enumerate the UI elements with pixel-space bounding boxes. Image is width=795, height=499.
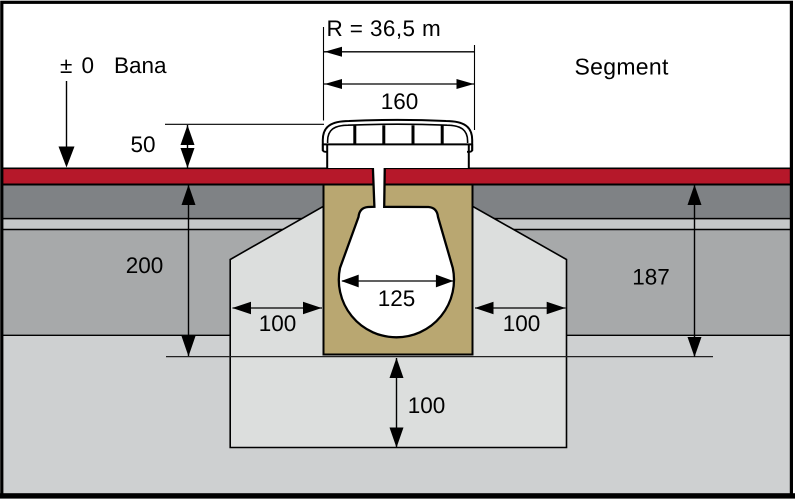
svg-text:100: 100 [503, 311, 541, 336]
svg-text:187: 187 [632, 265, 670, 290]
svg-text:R = 36,5 m: R = 36,5 m [327, 16, 442, 41]
svg-text:50: 50 [130, 132, 155, 157]
svg-text:160: 160 [381, 89, 419, 114]
svg-text:200: 200 [126, 253, 164, 278]
svg-text:100: 100 [259, 311, 297, 336]
svg-text:Segment: Segment [575, 54, 669, 80]
svg-text:100: 100 [408, 393, 446, 418]
svg-text:125: 125 [378, 286, 416, 311]
svg-text:Bana: Bana [114, 53, 167, 78]
svg-text:0: 0 [82, 53, 95, 78]
svg-text:±: ± [60, 53, 72, 78]
